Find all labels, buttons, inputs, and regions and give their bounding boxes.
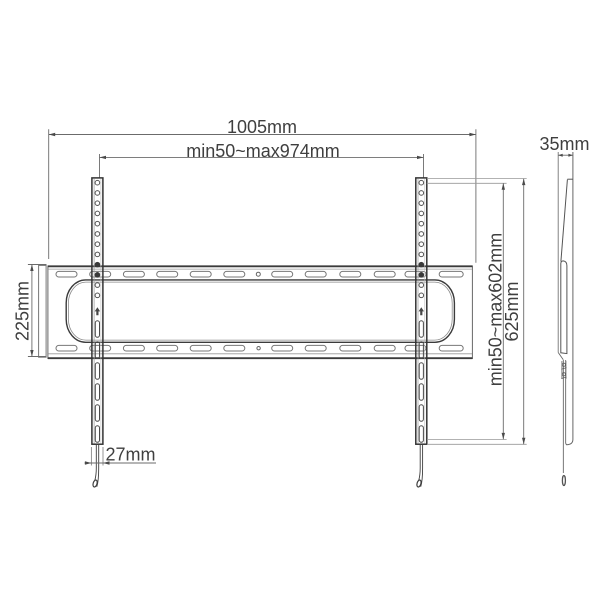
- svg-text:27mm: 27mm: [105, 445, 155, 465]
- svg-text:225mm: 225mm: [13, 281, 33, 341]
- svg-text:35mm: 35mm: [539, 134, 589, 154]
- svg-text:min50~max974mm: min50~max974mm: [186, 141, 340, 161]
- svg-text:1005mm: 1005mm: [227, 117, 297, 137]
- svg-text:625mm: 625mm: [502, 281, 522, 341]
